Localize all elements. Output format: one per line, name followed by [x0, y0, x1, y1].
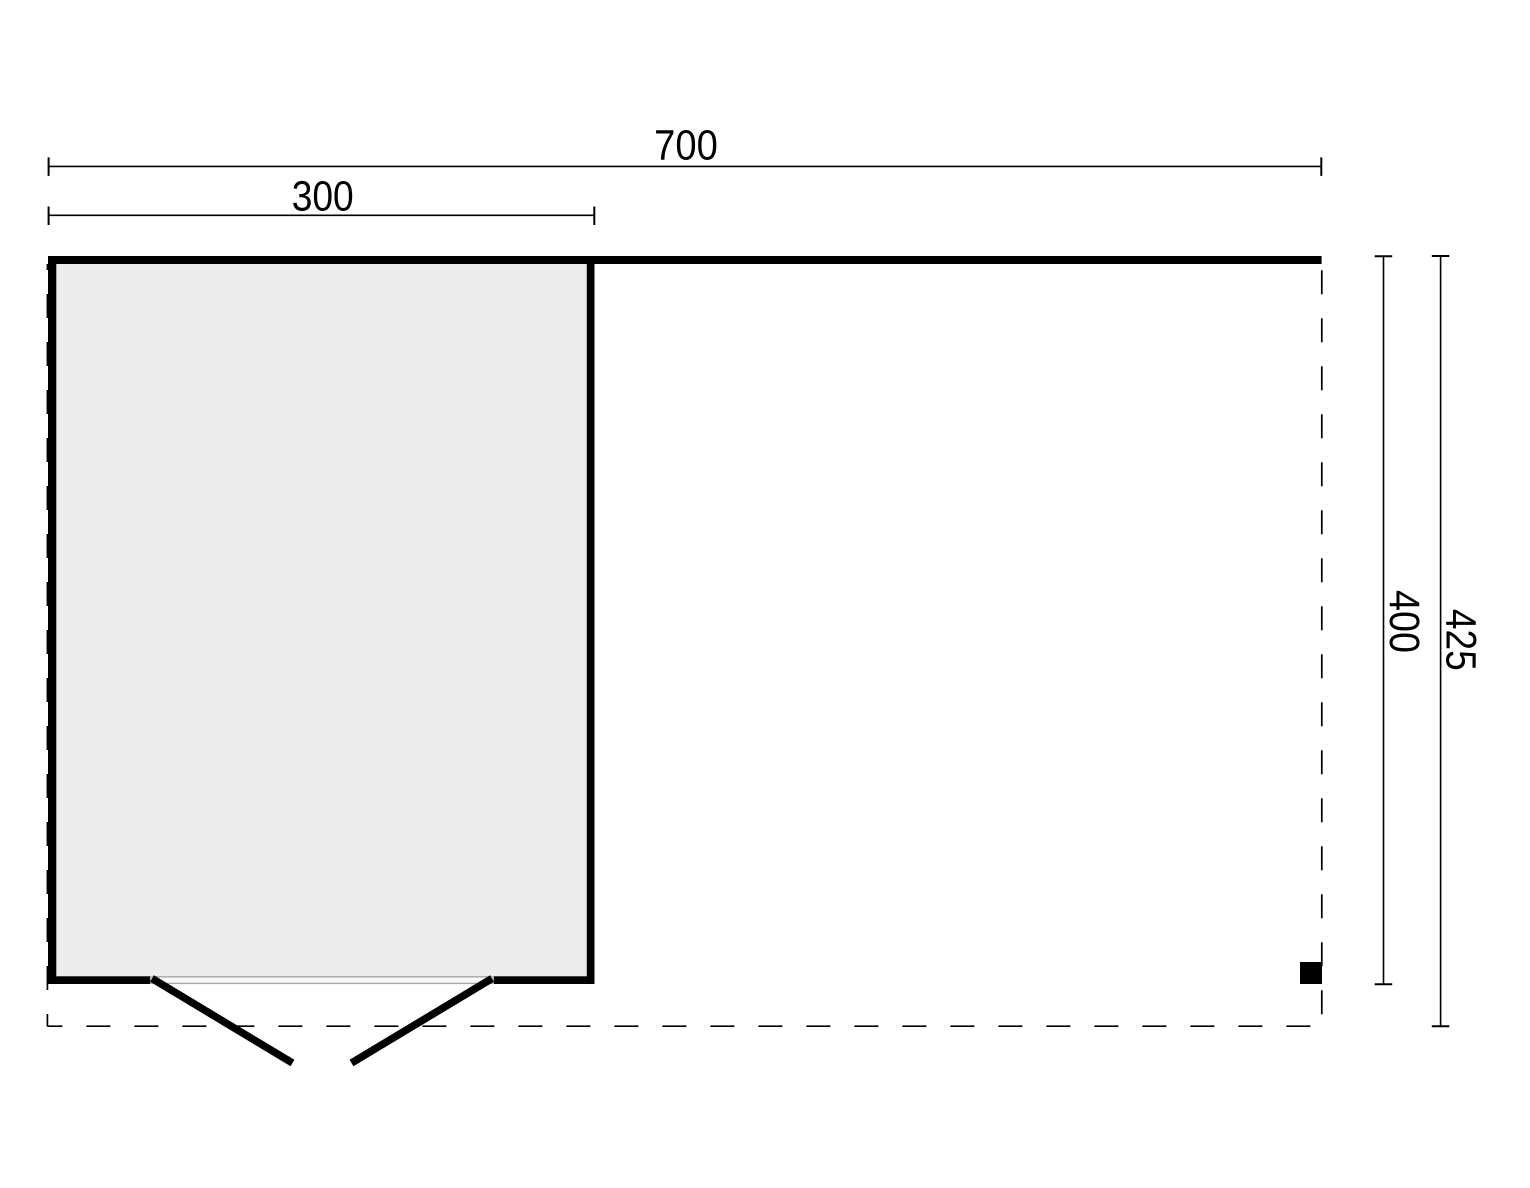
svg-text:425: 425 [1437, 609, 1485, 671]
svg-text:300: 300 [292, 173, 354, 221]
svg-text:400: 400 [1380, 590, 1428, 653]
svg-text:700: 700 [654, 121, 718, 169]
